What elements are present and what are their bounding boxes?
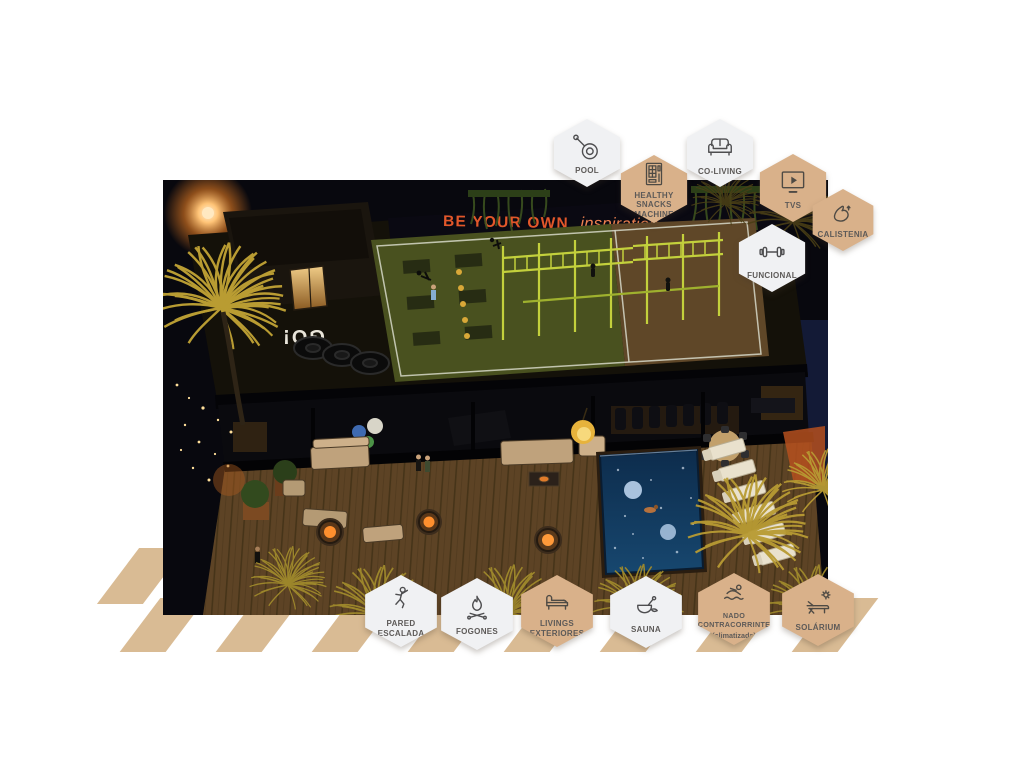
badge-livings-exteriores: LIVINGS EXTERIORES (518, 575, 596, 647)
badge-healthy-snacks: HEALTHY SNACKS MACHINE (618, 155, 690, 223)
pool (596, 446, 707, 578)
building-rendering: BE YOUR OWN inspiration GO! (163, 180, 828, 615)
sofa-icon (702, 129, 738, 165)
climber-icon (384, 583, 418, 617)
badge-co-living: CO-LIVING (684, 119, 756, 187)
badge-label: LIVINGS EXTERIORES (522, 619, 592, 638)
badge-label: HEALTHY SNACKS MACHINE (619, 191, 689, 220)
daybed-icon (540, 583, 574, 617)
sauna-bucket-icon (629, 589, 663, 623)
badge-calistenia: CALISTENIA (810, 189, 876, 251)
badge-label: NADO CONTRACORRINTE (696, 612, 772, 629)
badge-label: CO-LIVING (685, 167, 755, 177)
badge-pool: POOL (551, 119, 623, 187)
dumbbell-rack (751, 398, 795, 413)
badge-pared-escalada: PARED ESCALADA (362, 575, 440, 647)
badge-funcional: FUNCIONAL (736, 224, 808, 292)
spin-bikes (611, 402, 739, 434)
badge-label: CALISTENIA (808, 230, 878, 240)
badge-sauna: SAUNA (607, 576, 685, 648)
vending-machine-icon (639, 159, 669, 189)
swimmer-icon (718, 578, 750, 610)
sun-lounger-icon (801, 587, 835, 621)
badge-label: PARED ESCALADA (366, 619, 436, 638)
badge-label: FOGONES (442, 627, 512, 637)
badge-sublabel: (climatizada) (712, 632, 756, 640)
bicep-icon (829, 200, 857, 228)
campfire-icon (460, 591, 494, 625)
badge-fogones: FOGONES (438, 578, 516, 650)
tv-icon (776, 165, 810, 199)
marketing-image-page: BE YOUR OWN inspiration GO! (0, 0, 1024, 768)
dumbbell-icon (755, 235, 789, 269)
badge-label: SAUNA (611, 625, 681, 635)
badge-nado-contracorrinte: NADO CONTRACORRINTE (climatizada) (695, 573, 773, 645)
badge-label: SOLÁRIUM (783, 623, 853, 633)
badge-label: FUNCIONAL (737, 271, 807, 281)
badge-label: POOL (552, 166, 622, 176)
rooftop-court (371, 218, 769, 382)
badge-solarium: SOLÁRIUM (779, 574, 857, 646)
pool-skimmer-icon (570, 130, 604, 164)
